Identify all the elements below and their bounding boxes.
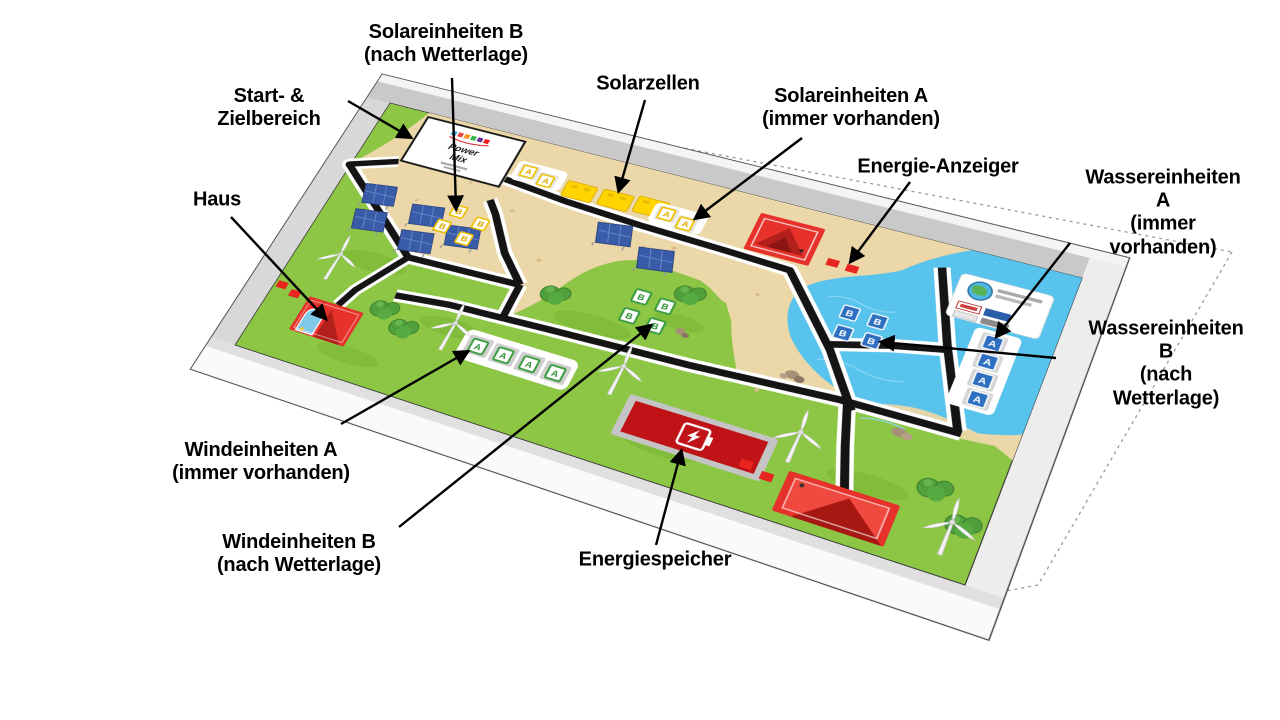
label-solarzellen: Solarzellen — [596, 72, 699, 95]
label-wassereinheiten-b: Wassereinheiten B (nach Wetterlage) — [1088, 318, 1243, 411]
label-solareinheiten-b: Solareinheiten B (nach Wetterlage) — [364, 21, 528, 67]
label-start-ziel: Start- & Zielbereich — [217, 85, 320, 131]
label-windeinheiten-b: Windeinheiten B (nach Wetterlage) — [217, 531, 381, 577]
label-wassereinheiten-a: Wassereinheiten A (immer vorhanden) — [1085, 167, 1240, 260]
label-haus: Haus — [193, 188, 241, 211]
diagram-canvas: Power Mix — [0, 0, 1280, 720]
label-windeinheiten-a: Windeinheiten A (immer vorhanden) — [172, 439, 350, 485]
label-energie-anzeiger: Energie-Anzeiger — [857, 155, 1018, 178]
label-energiespeicher: Energiespeicher — [579, 548, 732, 571]
label-solareinheiten-a: Solareinheiten A (immer vorhanden) — [762, 85, 940, 131]
